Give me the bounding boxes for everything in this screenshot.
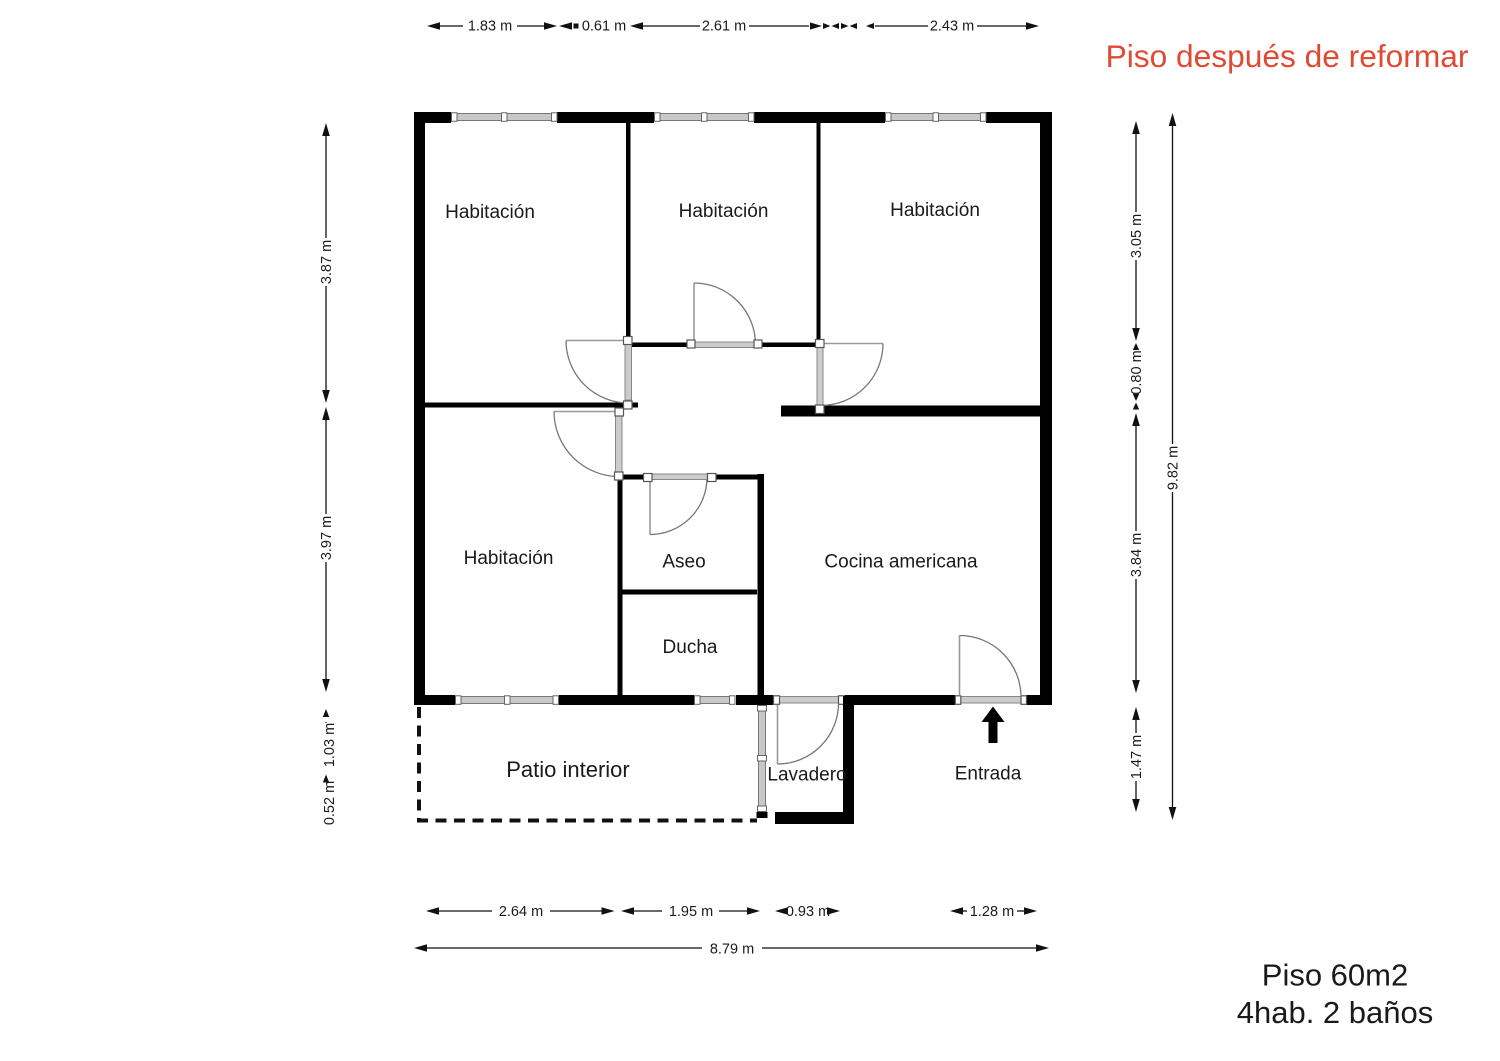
svg-text:1.03 m: 1.03 m <box>322 723 338 767</box>
svg-text:0.52 m: 0.52 m <box>322 781 338 825</box>
svg-text:0.80 m: 0.80 m <box>1129 350 1145 394</box>
svg-text:4hab. 2 baños: 4hab. 2 baños <box>1237 995 1434 1030</box>
svg-text:2.64 m: 2.64 m <box>499 904 543 920</box>
svg-text:0.93 m: 0.93 m <box>786 904 830 920</box>
svg-text:9.82 m: 9.82 m <box>1166 446 1182 490</box>
svg-text:1.83 m: 1.83 m <box>468 19 512 35</box>
svg-text:Lavadero: Lavadero <box>767 765 846 786</box>
svg-text:Habitación: Habitación <box>679 201 769 222</box>
svg-text:Cocina americana: Cocina americana <box>824 552 978 573</box>
svg-text:2.43 m: 2.43 m <box>930 19 974 35</box>
svg-text:3.97 m: 3.97 m <box>319 516 335 560</box>
svg-text:8.79 m: 8.79 m <box>710 942 754 958</box>
svg-text:0.61 m: 0.61 m <box>582 19 626 35</box>
svg-text:Habitación: Habitación <box>445 202 535 223</box>
svg-text:2.61 m: 2.61 m <box>702 19 746 35</box>
svg-text:3.84 m: 3.84 m <box>1129 533 1145 577</box>
svg-text:Piso 60m2: Piso 60m2 <box>1262 958 1408 993</box>
svg-text:1.95 m: 1.95 m <box>669 904 713 920</box>
svg-text:Aseo: Aseo <box>662 552 705 573</box>
svg-text:Ducha: Ducha <box>663 637 718 658</box>
svg-text:1.28 m: 1.28 m <box>970 904 1014 920</box>
svg-text:Entrada: Entrada <box>955 764 1022 785</box>
svg-text:3.87 m: 3.87 m <box>319 240 335 284</box>
svg-text:1.47 m: 1.47 m <box>1129 735 1145 779</box>
svg-text:Habitación: Habitación <box>464 548 554 569</box>
svg-text:3.05 m: 3.05 m <box>1129 214 1145 258</box>
svg-text:Patio interior: Patio interior <box>506 757 630 782</box>
svg-text:Piso después de reformar: Piso después de reformar <box>1106 38 1469 74</box>
svg-text:Habitación: Habitación <box>890 200 980 221</box>
